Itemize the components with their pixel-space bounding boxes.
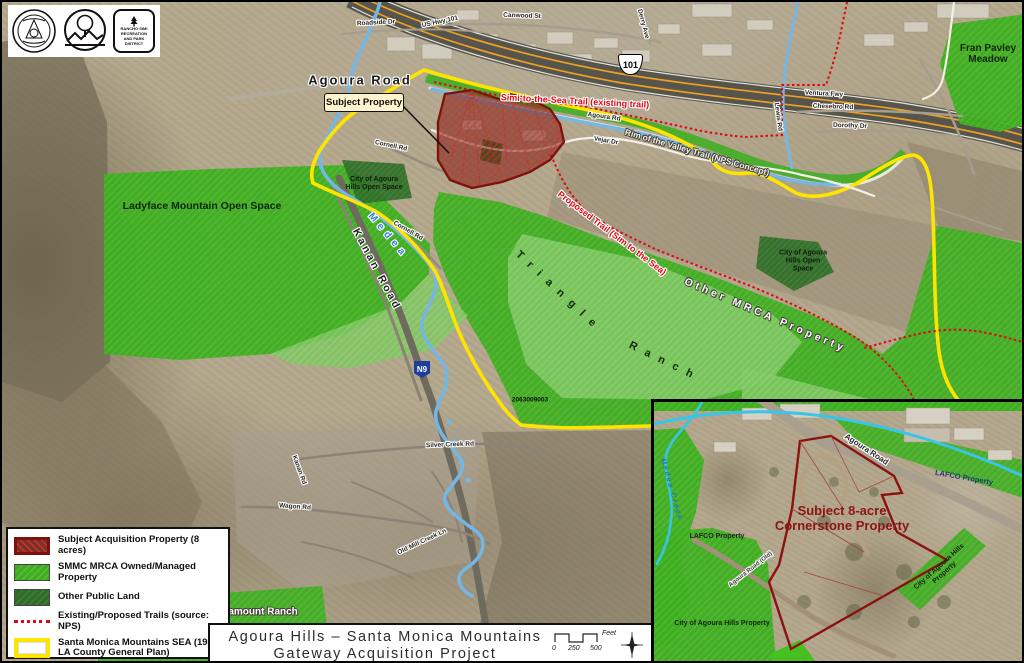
la-county-seal-icon [11,8,57,54]
subject-property-callout: Subject Property [324,93,404,112]
inset-lafco-left-label: LAFCO Property [690,533,745,541]
legend-label: SMMC MRCA Owned/Managed Property [58,562,222,584]
legend-label: Subject Acquisition Property (8 acres) [58,535,222,557]
legend-row: Subject Acquisition Property (8 acres) [14,535,222,557]
rancho-simi-text: DISTRICT [125,42,143,47]
city-open-space-label-1: City of Agoura Hills Open Space [345,176,403,192]
legend: Subject Acquisition Property (8 acres) S… [6,527,230,659]
legend-row: Existing/Proposed Trails (source: NPS) [14,611,222,633]
map-canvas: Agoura Road Subject Property 101 N9 Lady… [0,0,1024,663]
rancho-simi-district-icon: RANCHO SIMI RECREATION AND PARK DISTRICT [113,9,155,53]
legend-label: Other Public Land [58,592,140,603]
map-title-line1: Agoura Hills – Santa Monica Mountains [220,629,550,645]
smmc-property-swatch [14,564,50,581]
legend-label: Existing/Proposed Trails (source: NPS) [58,611,222,633]
inset-map: Agoura Road LAFCO Property Medea Creek L… [651,399,1024,663]
sea-boundary-swatch [14,638,50,658]
legend-label: Santa Monica Mountains SEA (1980 LA Coun… [58,638,222,660]
smmc-conservancy-icon [61,7,109,55]
legend-row: Santa Monica Mountains SEA (1980 LA Coun… [14,638,222,660]
city-open-space-label-2: City of Agoura Hills Open Space [775,249,831,272]
title-block: Agoura Hills – Santa Monica Mountains Ga… [208,623,654,663]
north-arrow-icon [619,631,645,659]
street-label: Chesebro Rd [813,103,854,112]
scale-tick: 500 [590,645,602,652]
inset-subject-label-line1: Subject 8-acre [798,504,887,518]
subject-property-swatch [14,537,50,555]
logo-box: RANCHO SIMI RECREATION AND PARK DISTRICT [8,5,160,57]
scale-tick: 250 [568,645,580,652]
street-label: Dorothy Dr [833,122,867,130]
other-public-land-swatch [14,589,50,606]
map-title-line2: Gateway Acquisition Project [220,646,550,662]
legend-row: Other Public Land [14,589,222,606]
scale-bar-icon [554,631,604,645]
legend-row: SMMC MRCA Owned/Managed Property [14,562,222,584]
agoura-road-label: Agoura Road [308,74,412,89]
parcel-number-label: 2063009003 [512,396,548,403]
inset-subject-label-line2: Cornerstone Property [775,519,909,533]
street-label: Canwood St [503,12,541,21]
scale-unit: Feet [602,630,616,637]
fran-pavley-meadow-label: Fran Pavley Meadow [950,43,1024,65]
trails-line-swatch [14,620,50,623]
scale-tick: 0 [552,645,556,652]
inset-city-property-left-label: City of Agoura Hills Property [674,620,769,628]
ladyface-open-space-label: Ladyface Mountain Open Space [102,201,302,213]
